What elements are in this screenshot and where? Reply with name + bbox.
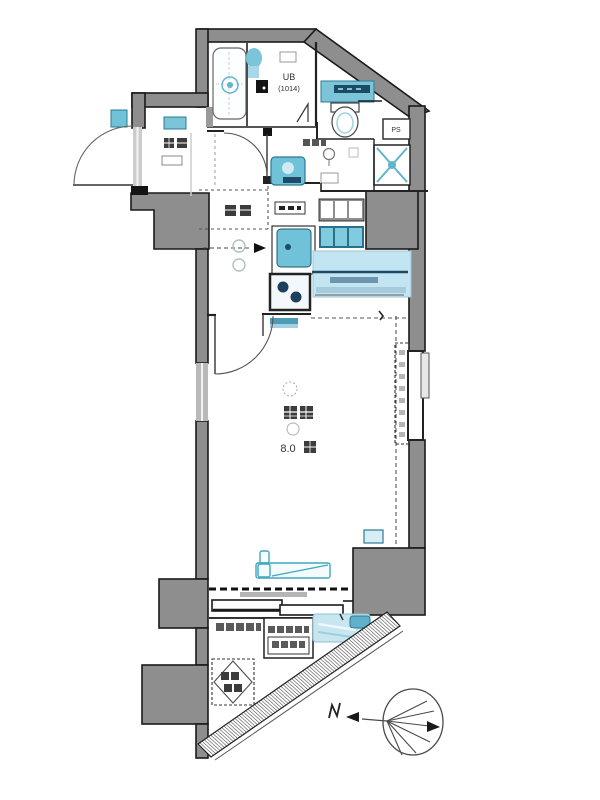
svg-text:8.0: 8.0 — [280, 443, 295, 455]
svg-text:PS: PS — [391, 127, 401, 134]
svg-text:UB: UB — [283, 72, 296, 82]
svg-text:(1014): (1014) — [278, 84, 300, 93]
